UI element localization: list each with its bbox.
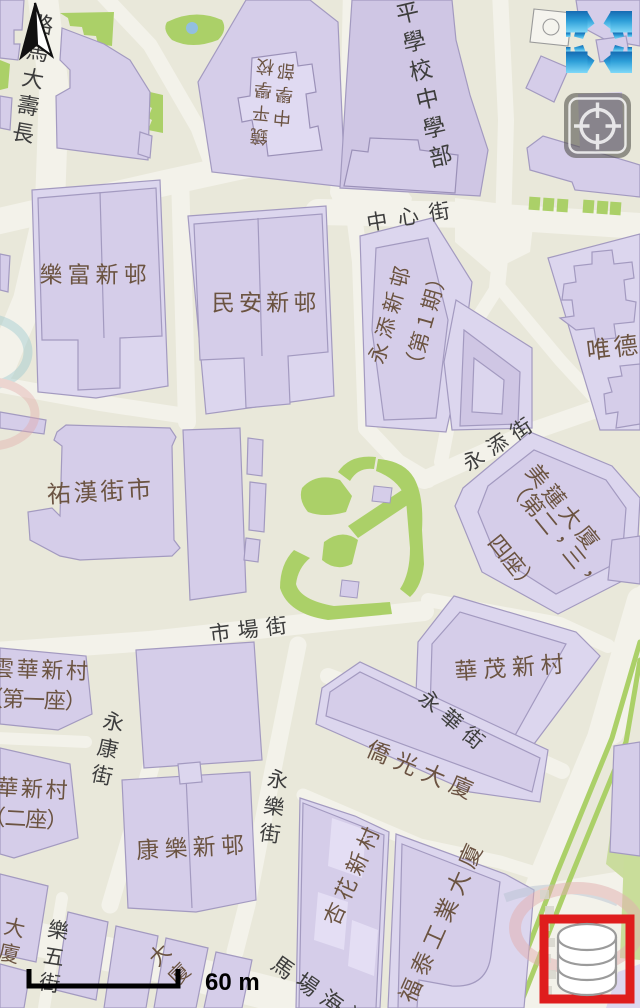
svg-text:60 m: 60 m: [205, 969, 260, 996]
